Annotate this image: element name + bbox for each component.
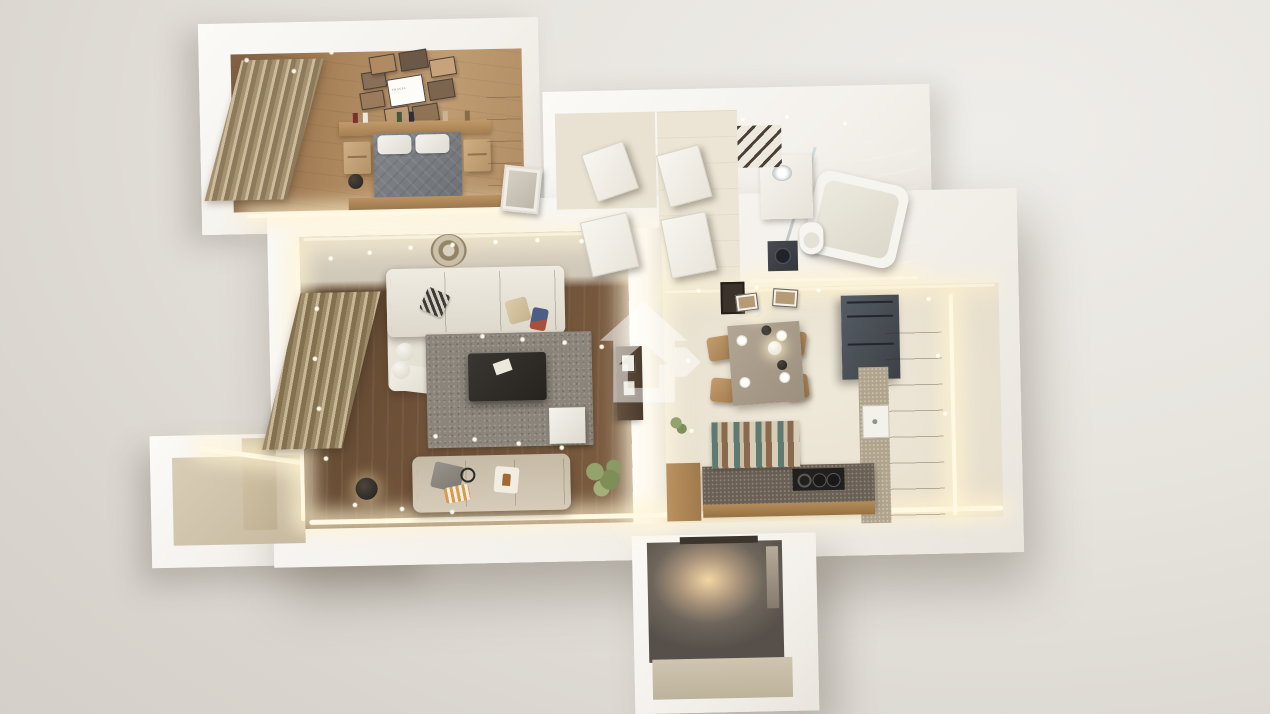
nightstand xyxy=(343,142,371,175)
entry-niche xyxy=(647,540,784,663)
balcony-floor xyxy=(172,455,306,546)
kitchen-sink xyxy=(862,405,890,439)
coffee-table xyxy=(468,352,547,402)
book xyxy=(443,111,448,121)
book xyxy=(363,113,368,123)
wall-frame xyxy=(772,288,798,308)
plate xyxy=(776,330,788,342)
entry-landing xyxy=(652,657,793,700)
wall-frame xyxy=(735,292,759,312)
house-arrow-watermark xyxy=(592,296,704,408)
book xyxy=(397,112,402,122)
towel-ladder xyxy=(737,125,782,168)
cooktop xyxy=(792,468,844,491)
book xyxy=(465,111,470,121)
potted-plant xyxy=(582,456,625,499)
striped-runner-rug xyxy=(711,421,800,469)
side-cabinet xyxy=(666,463,701,522)
floorplan-scene: TRAVEL xyxy=(0,0,1270,714)
plate xyxy=(779,372,791,384)
photo-frame xyxy=(368,53,397,75)
travel-poster: TRAVEL xyxy=(386,74,426,107)
entry-window-slit xyxy=(766,546,779,608)
photo-frame xyxy=(398,49,429,72)
plate xyxy=(739,377,751,389)
kitchen-plant xyxy=(667,413,689,437)
toilet xyxy=(799,222,824,254)
cube-side-table xyxy=(549,407,586,444)
poster-text: TRAVEL xyxy=(392,86,407,92)
pillow xyxy=(415,134,449,154)
photo-frame xyxy=(429,56,458,78)
deer-pillow xyxy=(493,466,519,494)
leaning-mirror xyxy=(500,165,542,215)
book xyxy=(409,112,414,122)
pillow xyxy=(377,135,411,155)
plate xyxy=(736,335,748,347)
book xyxy=(353,113,358,123)
photo-frame xyxy=(427,78,456,101)
cabinet-run xyxy=(885,332,945,521)
photo-frame xyxy=(359,90,385,111)
washing-machine xyxy=(768,241,799,272)
